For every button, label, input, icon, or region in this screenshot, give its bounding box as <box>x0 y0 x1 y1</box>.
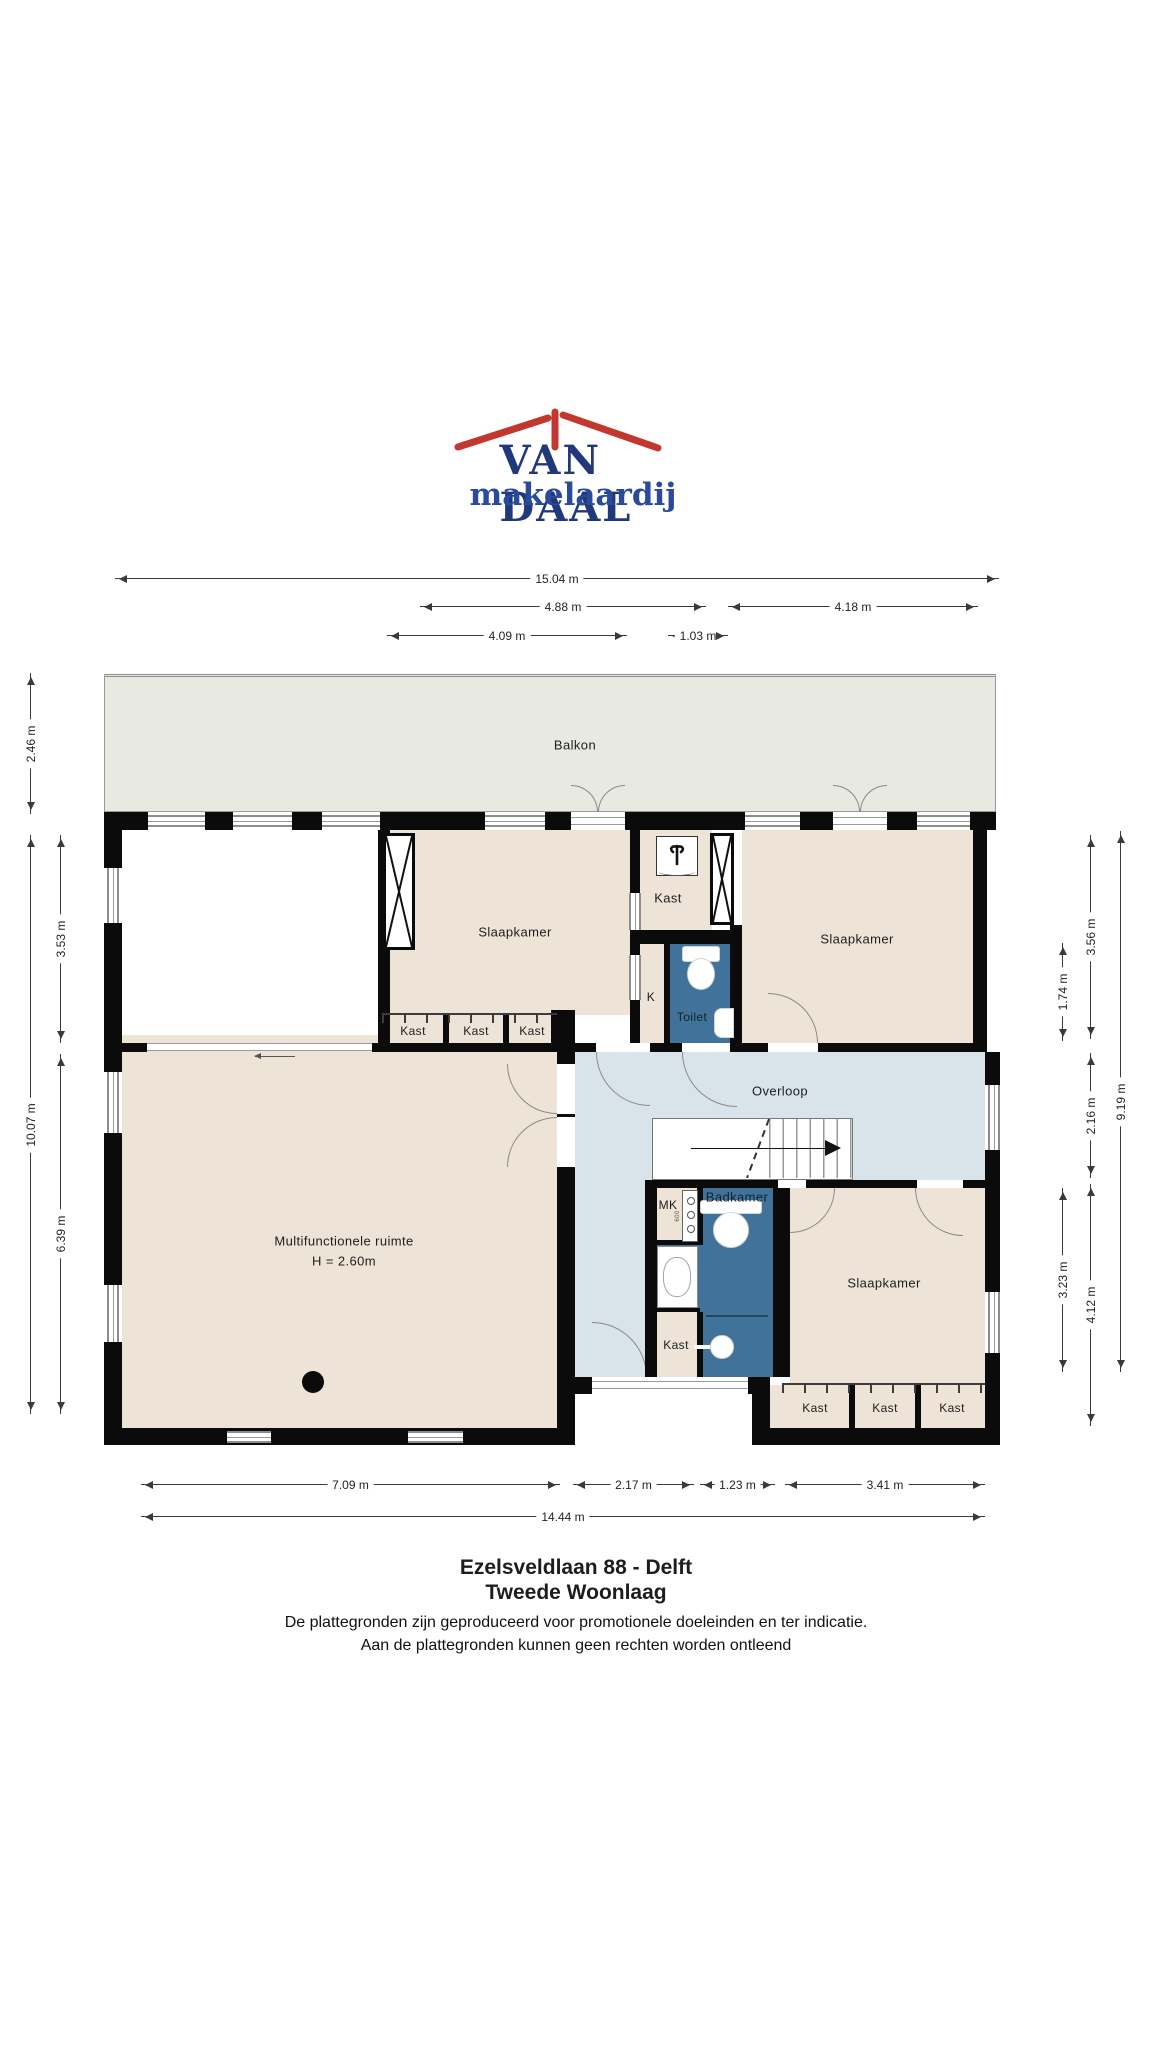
plan-element: 4.09 m <box>484 629 531 643</box>
wall <box>545 812 571 830</box>
closet-label: Kast <box>939 1401 965 1415</box>
wall <box>973 812 987 1052</box>
plan-element: 3.56 m <box>1084 913 1098 962</box>
wall <box>292 812 322 830</box>
room-label-badkamer: Badkamer <box>706 1190 768 1205</box>
room-label-multifunctioneel-1: Multifunctionele ruimte <box>274 1234 413 1249</box>
wall <box>887 812 917 830</box>
wall <box>104 812 122 868</box>
plan-element: 1.74 m <box>1056 968 1070 1017</box>
plan-element: 4.88 m <box>540 600 587 614</box>
wall <box>645 1188 657 1377</box>
window <box>227 1431 271 1443</box>
room-label-overloop: Overloop <box>752 1084 808 1099</box>
dimension-bottom-341: 3.41 m <box>785 1484 985 1485</box>
door-slit <box>629 893 641 930</box>
room-label-kast-top: Kast <box>654 891 682 906</box>
wall <box>985 1052 1000 1085</box>
wall <box>557 1114 575 1117</box>
toilet-bowl-2 <box>713 1212 749 1248</box>
plan-element: 3.41 m <box>862 1478 909 1492</box>
dimension-right-919: 9.19 m <box>1120 831 1121 1372</box>
room-label-balkon: Balkon <box>554 738 596 753</box>
wall <box>818 1043 985 1052</box>
door-threshold <box>571 817 625 825</box>
closet-label: Kast <box>802 1401 828 1415</box>
door-slit <box>629 955 641 1000</box>
plan-element: 2.17 m <box>610 1478 657 1492</box>
dimension-left-353: 3.53 m <box>60 835 61 1043</box>
plan-element: 1.23 m <box>714 1478 761 1492</box>
room-label-slaapkamer-right: Slaapkamer <box>820 932 893 947</box>
corner-basin <box>714 1008 734 1038</box>
room-slaapkamer-top-left <box>390 830 630 1015</box>
wall <box>104 1428 575 1445</box>
sliding-door-threshold <box>147 1043 372 1051</box>
washing-machine <box>656 836 698 876</box>
plan-element: 3.53 m <box>54 915 68 964</box>
window <box>322 815 380 827</box>
wall <box>645 1180 778 1188</box>
logo: VAN DAAL makelaardij <box>420 385 720 515</box>
room-label-slaapkamer-bottom: Slaapkamer <box>847 1276 920 1291</box>
wall <box>557 1052 575 1064</box>
staircase <box>652 1118 853 1180</box>
plan-element: 14.44 m <box>536 1510 589 1524</box>
room-label-kast-mid: Kast <box>663 1338 689 1352</box>
window <box>107 1072 119 1133</box>
wall <box>122 1043 147 1052</box>
dimension-right-412: 4.12 m <box>1090 1184 1091 1426</box>
dimension-right-216: 2.16 m <box>1090 1053 1091 1178</box>
window <box>988 1085 1000 1150</box>
plan-element: 2.46 m <box>24 719 38 768</box>
plan-element: 15.04 m <box>530 572 583 586</box>
wall <box>650 1043 682 1052</box>
shower-head <box>710 1335 734 1359</box>
window <box>485 815 545 827</box>
plan-element: 9.19 m <box>1114 1077 1128 1126</box>
plan-element: 4.18 m <box>830 600 877 614</box>
wall <box>575 1377 592 1394</box>
closet-label: Kast <box>872 1401 898 1415</box>
dimension-top-409: 4.09 m <box>387 635 627 636</box>
toilet-bowl <box>687 958 715 990</box>
dimension-bottom-123: 1.23 m <box>700 1484 775 1485</box>
dimension-left-246: 2.46 m <box>30 673 31 814</box>
plan-element: 6.39 m <box>54 1210 68 1259</box>
plan-element: 1.03 m <box>675 629 722 643</box>
stair-direction-line <box>691 1148 831 1149</box>
meter-cupboard <box>682 1190 698 1242</box>
meter-label: 600 <box>675 1210 681 1221</box>
wall <box>104 1133 122 1285</box>
logo-tagline: makelaardij <box>469 477 676 513</box>
sliding-door-arrow <box>255 1056 295 1057</box>
disclaimer-line-2: Aan de plattegronden kunnen geen rechten… <box>0 1637 1152 1655</box>
wall <box>625 812 745 830</box>
plan-element: 10.07 m <box>24 1097 38 1152</box>
wall <box>380 812 485 830</box>
wall <box>773 1188 790 1377</box>
wall <box>737 1043 768 1052</box>
window <box>917 815 970 827</box>
door-threshold <box>833 817 887 825</box>
dimension-top-418: 4.18 m <box>728 606 978 607</box>
window <box>988 1292 1000 1353</box>
wall <box>985 1150 1000 1292</box>
plan-element: 2.16 m <box>1084 1091 1098 1140</box>
dimension-right-174: 1.74 m <box>1062 943 1063 1041</box>
window <box>408 1431 463 1443</box>
dimension-right-323: 3.23 m <box>1062 1188 1063 1372</box>
disclaimer-line-1: De plattegronden zijn geproduceerd voor … <box>0 1614 1152 1632</box>
dimension-right-356: 3.56 m <box>1090 835 1091 1039</box>
wall <box>963 1180 985 1188</box>
dimension-left-639: 6.39 m <box>60 1054 61 1414</box>
wall <box>752 1428 1000 1445</box>
shaft-x-left <box>383 833 415 950</box>
window <box>233 815 292 827</box>
room-label-k: K <box>647 990 655 1004</box>
wall <box>104 923 122 1072</box>
page-title: Ezelsveldlaan 88 - Delft <box>0 1556 1152 1580</box>
floorplan-page: VAN DAAL makelaardij 15.04 m 4.88 m 4.18… <box>0 0 1152 2048</box>
plan-element: 7.09 m <box>327 1478 374 1492</box>
window <box>107 868 119 923</box>
dimension-bottom-709: 7.09 m <box>141 1484 560 1485</box>
shower-arm <box>694 1345 710 1349</box>
dimension-bottom-217: 2.17 m <box>573 1484 694 1485</box>
dimension-bottom-total: 14.44 m <box>141 1516 985 1517</box>
room-label-toilet: Toilet <box>677 1010 707 1024</box>
wall <box>205 812 233 830</box>
room-label-multifunctioneel-2: H = 2.60m <box>312 1254 376 1269</box>
washbasin-bowl <box>663 1257 691 1297</box>
tap-icon <box>666 840 688 866</box>
dimension-left-1007: 10.07 m <box>30 835 31 1414</box>
dimension-top-103: 1.03 m <box>668 635 728 636</box>
room-multifunctioneel <box>122 1035 557 1428</box>
door-threshold <box>592 1381 748 1389</box>
closet-label: Kast <box>463 1024 489 1038</box>
closet-label: Kast <box>400 1024 426 1038</box>
dimension-top-total: 15.04 m <box>115 578 999 579</box>
wall <box>630 930 742 944</box>
page-subtitle: Tweede Woonlaag <box>0 1581 1152 1605</box>
window <box>745 815 800 827</box>
shaft-x-right <box>710 833 734 925</box>
wall <box>657 1308 700 1312</box>
dimension-top-488: 4.88 m <box>420 606 706 607</box>
sliding-door-arrow-head <box>251 1053 261 1059</box>
plan-element: 4.12 m <box>1084 1281 1098 1330</box>
column <box>302 1371 324 1393</box>
towel-rail <box>706 1315 768 1317</box>
room-label-slaapkamer-left: Slaapkamer <box>478 925 551 940</box>
closet-front-line <box>782 1383 985 1393</box>
window <box>107 1285 119 1342</box>
stair-direction-arrow <box>825 1140 849 1156</box>
wall <box>557 1167 575 1445</box>
room-balkon <box>104 674 996 812</box>
wall <box>800 812 833 830</box>
wall <box>806 1180 917 1188</box>
washbasin-console <box>657 1246 698 1308</box>
closet-front-line <box>382 1013 557 1023</box>
room-label-mk: MK <box>659 1198 678 1212</box>
window <box>148 815 205 827</box>
plan-element: 3.23 m <box>1056 1256 1070 1305</box>
closet-label: Kast <box>519 1024 545 1038</box>
wall <box>664 944 670 1043</box>
